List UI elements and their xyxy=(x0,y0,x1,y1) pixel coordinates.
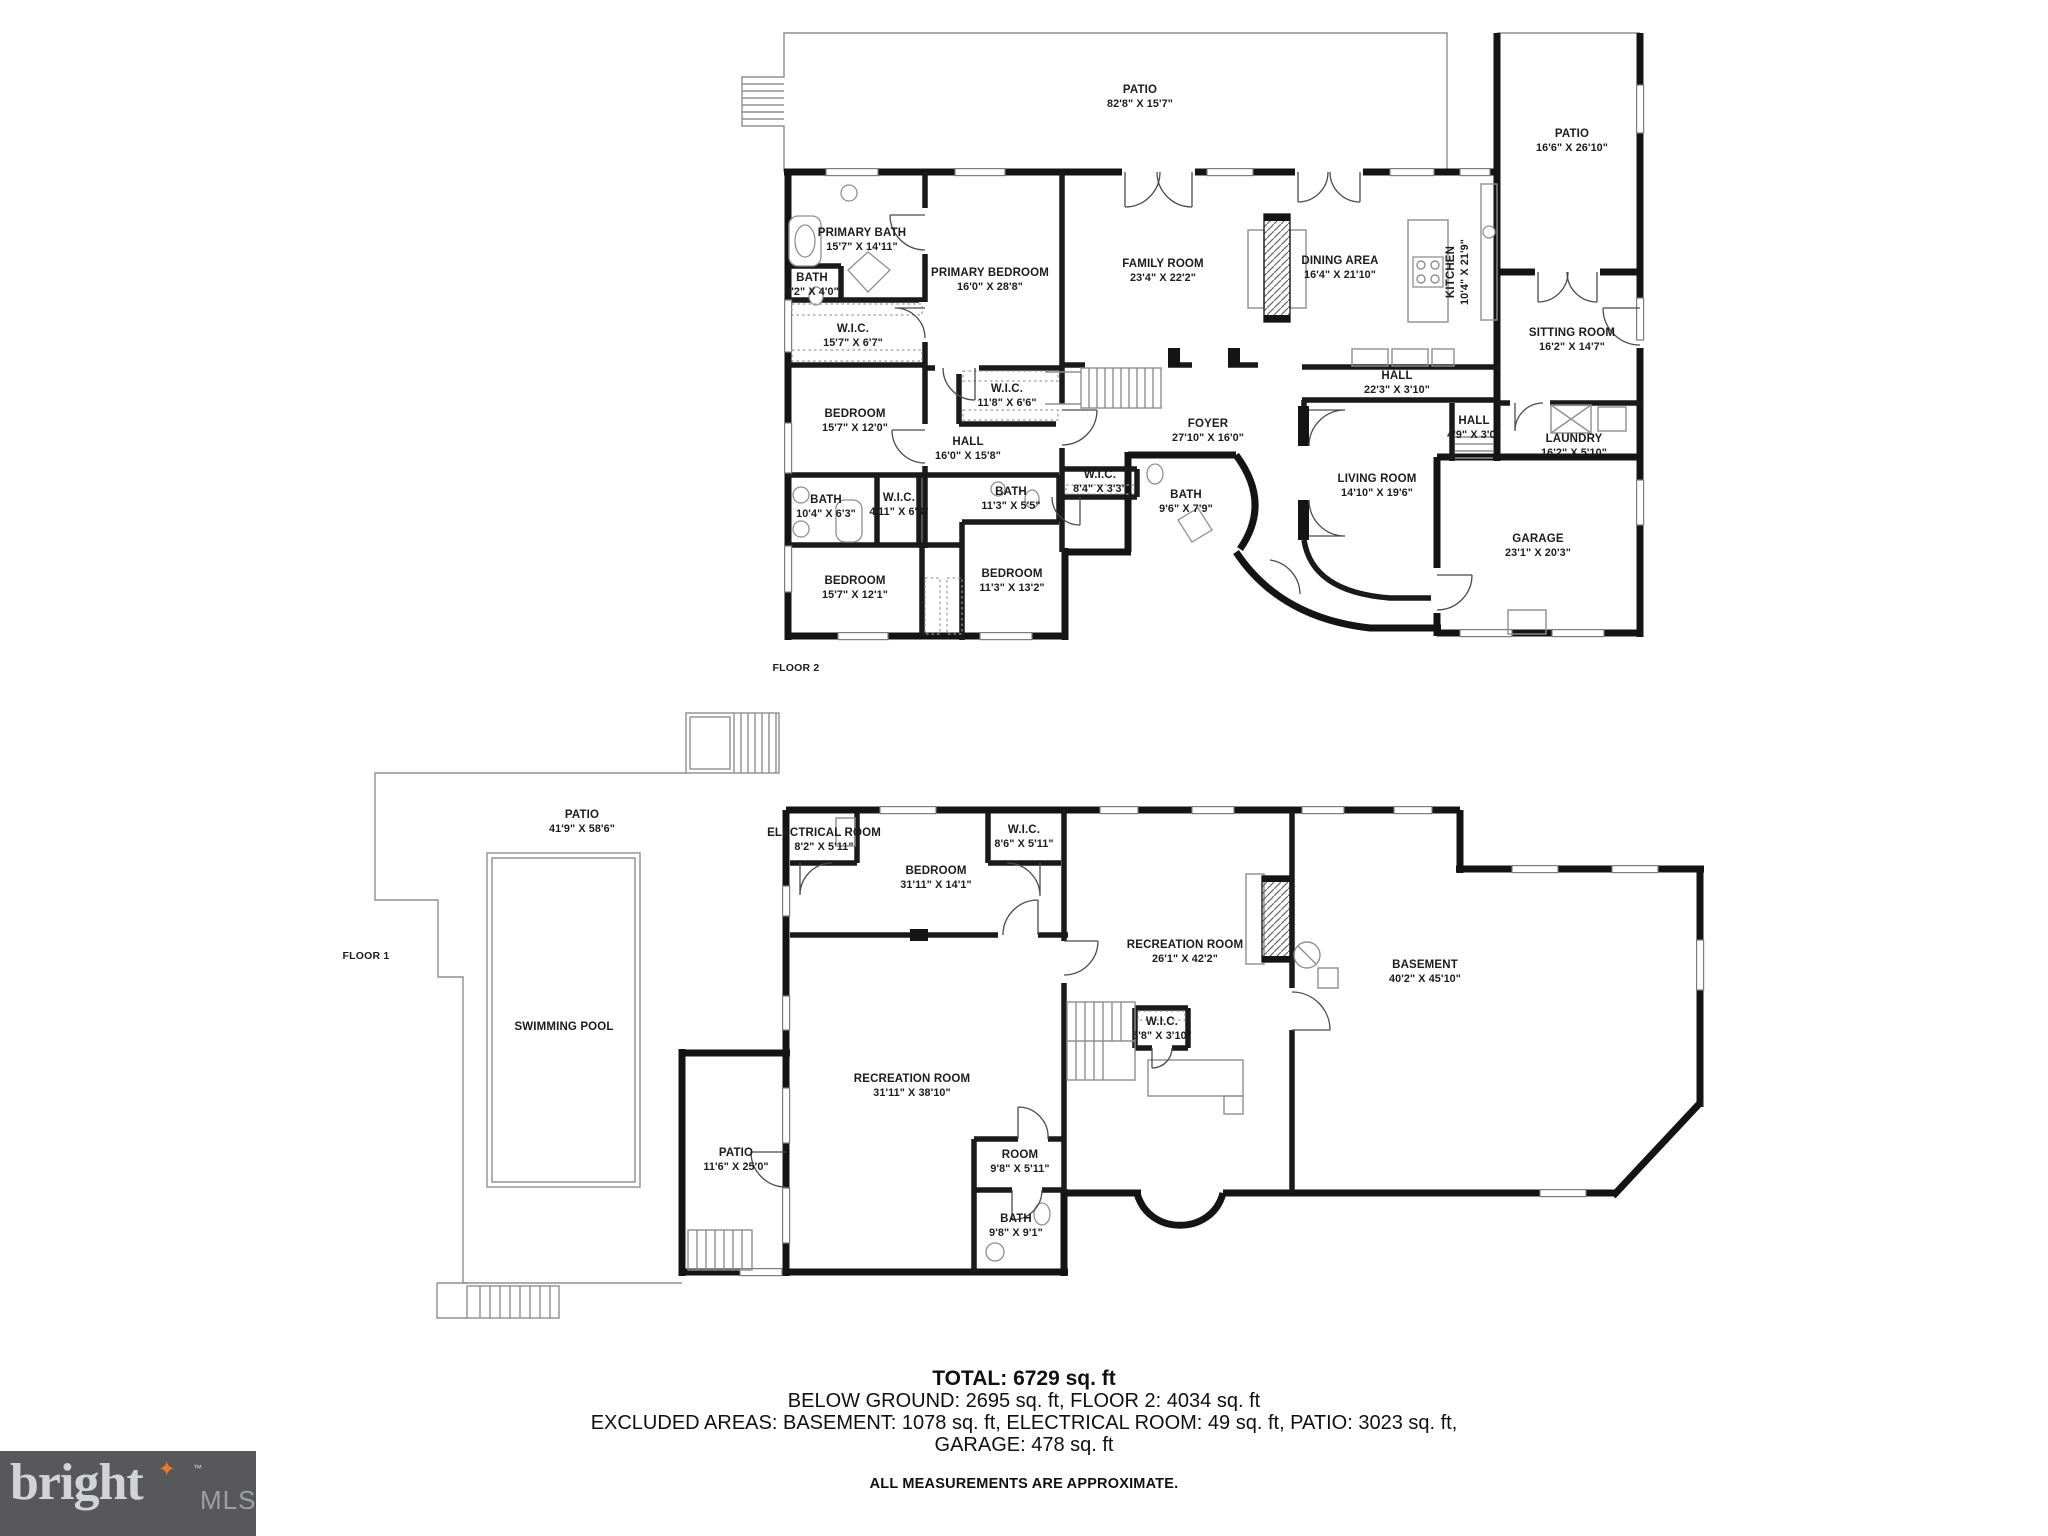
floorplan-page: PATIO82'8" X 15'7"PATIO16'6" X 26'10"PRI… xyxy=(0,0,2048,1536)
room-label: PATIO16'6" X 26'10" xyxy=(1536,128,1608,154)
brand-logo: bright ✦ ™ MLS xyxy=(0,1451,256,1536)
room-label: PATIO11'6" X 25'0" xyxy=(703,1147,768,1173)
floorplan-drawing xyxy=(0,0,2048,1536)
room-label: W.I.C.4'11" X 6'3" xyxy=(869,492,928,518)
summary-line3: EXCLUDED AREAS: BASEMENT: 1078 sq. ft, E… xyxy=(0,1412,2048,1434)
room-label: BASEMENT40'2" X 45'10" xyxy=(1389,959,1461,985)
room-label: BEDROOM15'7" X 12'1" xyxy=(822,575,888,601)
trademark-icon: ™ xyxy=(193,1463,202,1473)
room-label: W.I.C.8'6" X 5'11" xyxy=(994,824,1053,850)
room-label: DINING AREA16'4" X 21'10" xyxy=(1301,255,1378,281)
floor2-patio-outline xyxy=(742,33,1640,172)
fireplace-icon xyxy=(1248,214,1306,322)
room-label: BEDROOM11'3" X 13'2" xyxy=(979,568,1044,594)
room-label: FOYER27'10" X 16'0" xyxy=(1172,418,1244,444)
room-label: W.I.C.11'8" X 6'6" xyxy=(977,383,1036,409)
brand-logo-text: bright xyxy=(10,1453,143,1512)
floor1-patio-outline xyxy=(375,713,779,1318)
floor2-tag: FLOOR 2 xyxy=(773,662,820,674)
room-label: W.I.C.15'7" X 6'7" xyxy=(823,323,883,349)
room-label: W.I.C.8'4" X 3'3" xyxy=(1073,469,1127,495)
floor1-exterior-walls xyxy=(682,810,1704,1276)
room-label: BATH9'8" X 9'1" xyxy=(989,1213,1043,1239)
brand-logo-suffix: MLS xyxy=(200,1485,256,1516)
room-label: ELECTRICAL ROOM8'2" X 5'11" xyxy=(767,827,881,853)
swimming-pool xyxy=(487,853,640,1187)
summary-total: TOTAL: 6729 sq. ft xyxy=(0,1368,2048,1390)
room-label: LIVING ROOM14'10" X 19'6" xyxy=(1338,473,1417,499)
room-label: FAMILY ROOM23'4" X 22'2" xyxy=(1122,258,1204,284)
room-label: ROOM9'8" X 5'11" xyxy=(990,1149,1049,1175)
room-label: LAUNDRY16'2" X 5'10" xyxy=(1541,433,1607,459)
summary-line2: BELOW GROUND: 2695 sq. ft, FLOOR 2: 4034… xyxy=(0,1390,2048,1412)
room-label: PRIMARY BEDROOM16'0" X 28'8" xyxy=(931,267,1049,293)
room-label: SITTING ROOM16'2" X 14'7" xyxy=(1529,327,1615,353)
room-label: BATH6'2" X 4'0" xyxy=(785,272,839,298)
room-label: KITCHEN10'4" X 21'9" xyxy=(1445,239,1471,305)
summary-line4: GARAGE: 478 sq. ft xyxy=(0,1434,2048,1456)
room-label: HALL4'9" X 3'0" xyxy=(1447,415,1501,441)
summary-block: TOTAL: 6729 sq. ft BELOW GROUND: 2695 sq… xyxy=(0,1368,2048,1492)
star-icon: ✦ xyxy=(158,1457,176,1482)
room-label: HALL22'3" X 3'10" xyxy=(1364,370,1430,396)
room-label: PRIMARY BATH15'7" X 14'11" xyxy=(818,227,906,253)
room-label: BEDROOM31'11" X 14'1" xyxy=(900,865,971,891)
room-label: BATH11'3" X 5'5" xyxy=(981,486,1040,512)
fireplace-icon xyxy=(1246,874,1290,964)
room-label: BATH10'4" X 6'3" xyxy=(796,494,856,520)
floor1-tag: FLOOR 1 xyxy=(343,950,390,962)
room-label: BATH9'6" X 7'9" xyxy=(1159,489,1213,515)
room-label: BEDROOM15'7" X 12'0" xyxy=(822,408,888,434)
room-label: RECREATION ROOM26'1" X 42'2" xyxy=(1127,939,1243,965)
room-label: W.I.C.5'8" X 3'10" xyxy=(1132,1016,1192,1042)
floor1-wall-pier xyxy=(910,929,928,941)
room-label: HALL16'0" X 15'8" xyxy=(935,436,1001,462)
summary-disclaimer: ALL MEASUREMENTS ARE APPROXIMATE. xyxy=(0,1476,2048,1492)
room-label: RECREATION ROOM31'11" X 38'10" xyxy=(854,1073,970,1099)
room-label: GARAGE23'1" X 20'3" xyxy=(1505,533,1571,559)
room-label: SWIMMING POOL xyxy=(514,1021,613,1035)
room-label: PATIO41'9" X 58'6" xyxy=(549,809,615,835)
room-label: PATIO82'8" X 15'7" xyxy=(1107,84,1173,110)
